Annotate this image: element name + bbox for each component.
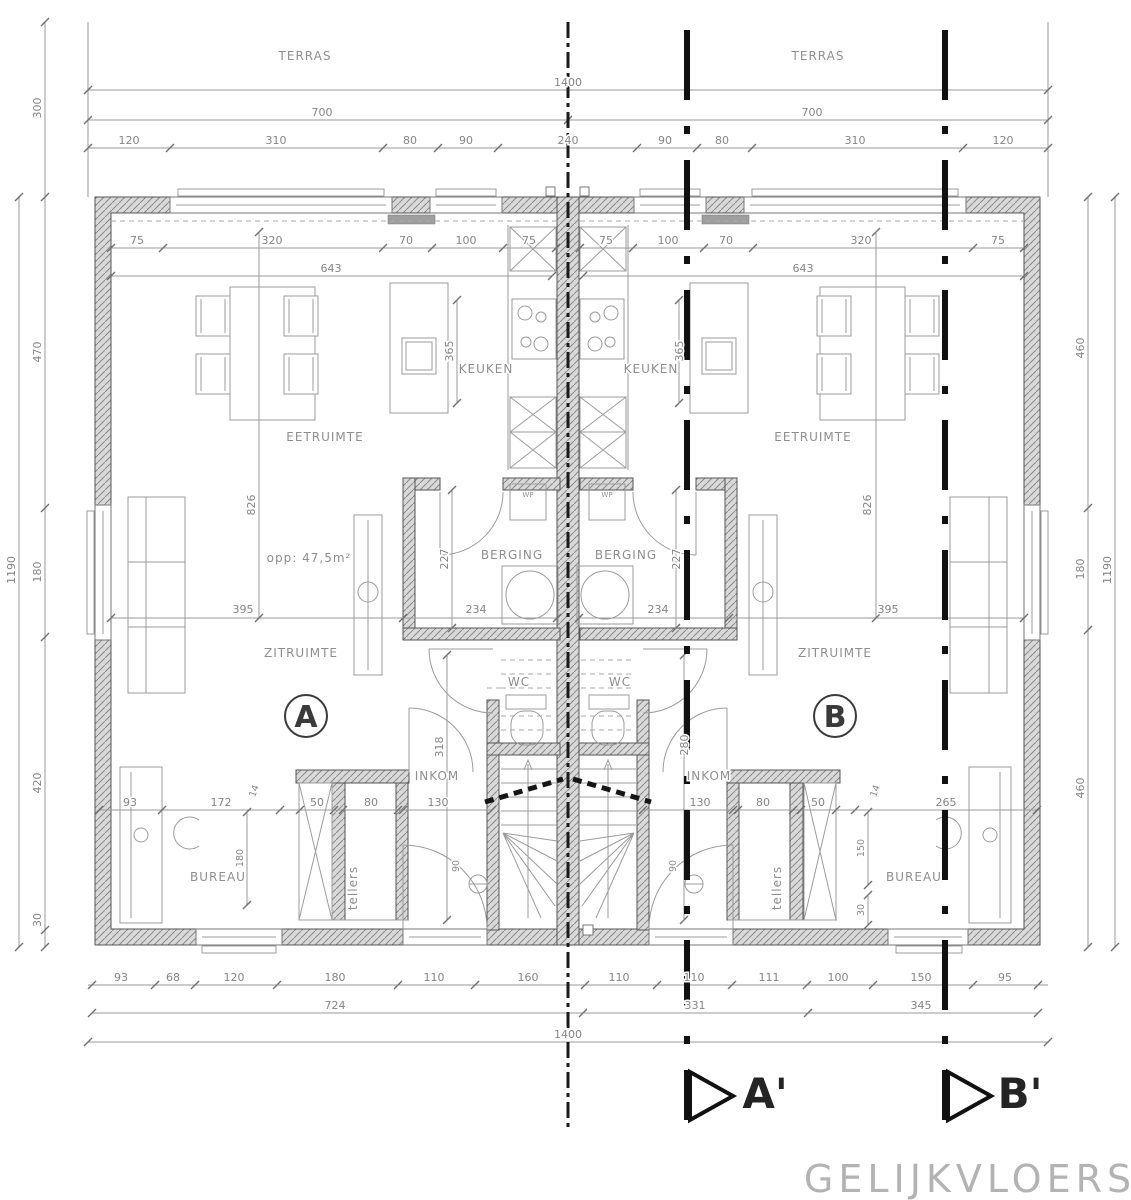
dim-top-chain-7: 310 [845, 134, 866, 147]
dim-top-overall: 1400 [554, 76, 582, 89]
room-label-inkom-right: INKOM [687, 769, 732, 783]
dim-bureau-left-2: 50 [310, 796, 324, 809]
dim-826-right: 826 [861, 495, 874, 516]
door-wc-right [643, 649, 707, 713]
dim-left-chain-0: 470 [31, 342, 44, 363]
room-label-inkom-left: INKOM [415, 769, 460, 783]
dim-bureau-right-1: 50 [811, 796, 825, 809]
dim-bureau-right-150: 150 [856, 839, 867, 857]
window-left-wall [87, 505, 111, 640]
washer-left [502, 566, 558, 624]
dim-left-overall: 1190 [5, 556, 18, 584]
room-label-eetruimte-right: EETRUIMTE [774, 430, 851, 444]
dim-bottom-chain-3: 180 [325, 971, 346, 984]
dim-top-700-left: 700 [312, 106, 333, 119]
dim-right-overall: 1190 [1101, 556, 1114, 584]
dim-int-left-0: 75 [130, 234, 144, 247]
dim-395-left: 395 [233, 603, 254, 616]
dim-top-chain-3: 90 [459, 134, 473, 147]
desk-left [120, 767, 199, 923]
dim-bottom-331: 331 [685, 999, 706, 1012]
dim-int-right-2: 70 [719, 234, 733, 247]
dim-395-right: 395 [878, 603, 899, 616]
section-label-b: B' [998, 1069, 1043, 1118]
section-label-a: A' [742, 1069, 787, 1118]
dim-int-left-4: 75 [522, 234, 536, 247]
dim-bureau-left-3: 80 [364, 796, 378, 809]
dim-bureau-left-14: 14 [247, 784, 261, 799]
dim-bureau-right-2: 265 [936, 796, 957, 809]
floorplan-drawing: 1400 700 700 120 310 80 90 240 90 80 310… [0, 0, 1131, 1200]
dim-227-left: 227 [438, 549, 451, 570]
dim-280-right: 280 [678, 735, 691, 756]
dim-bureau-right-30: 30 [856, 904, 867, 916]
floorplan-canvas: 1400 700 700 120 310 80 90 240 90 80 310… [0, 0, 1131, 1200]
toilet-left [506, 695, 546, 745]
dim-365-left: 365 [443, 341, 456, 362]
dim-bottom-overall: 1400 [554, 1028, 582, 1041]
dim-bottom-chain-6: 110 [609, 971, 630, 984]
dim-90-left: 90 [451, 860, 462, 872]
dim-top-chain-1: 310 [266, 134, 287, 147]
dim-left-chain-1: 180 [31, 562, 44, 583]
dim-top-chain-2: 80 [403, 134, 417, 147]
radiator-right [749, 515, 777, 675]
dim-int-right-643: 643 [793, 262, 814, 275]
room-label-bureau-right: BUREAU [886, 870, 942, 884]
label-area: opp: 47,5m² [267, 551, 352, 565]
dim-right-chain-2: 460 [1074, 778, 1087, 799]
dining-set-left [196, 287, 318, 420]
dim-826-left: 826 [245, 495, 258, 516]
dim-365-right: 365 [673, 341, 686, 362]
room-label-eetruimte-left: EETRUIMTE [286, 430, 363, 444]
window-right-wall [1024, 505, 1048, 640]
dim-bottom-chain-9: 100 [828, 971, 849, 984]
dim-318-left: 318 [433, 737, 446, 758]
dim-bottom-chain-2: 120 [224, 971, 245, 984]
room-label-berging-left: BERGING [481, 548, 543, 562]
room-label-bureau-left: BUREAU [190, 870, 246, 884]
front-door-left [403, 845, 487, 929]
door-zitruimte-right [663, 708, 727, 772]
dim-top-700-right: 700 [802, 106, 823, 119]
room-label-wc-left: WC [508, 675, 530, 689]
unit-b-letter: B [824, 700, 847, 735]
dim-left-chain-2: 420 [31, 773, 44, 794]
section-flag-a [690, 1072, 733, 1120]
section-flag-b [948, 1072, 991, 1120]
dim-right-chain-1: 180 [1074, 559, 1087, 580]
dim-bureau-left-0: 93 [123, 796, 137, 809]
dim-bottom-chain-7: 110 [684, 971, 705, 984]
dim-130-left: 130 [428, 796, 449, 809]
door-berging-left [440, 492, 503, 555]
kitchen-counter-left [508, 225, 556, 470]
front-door-right [649, 845, 733, 929]
room-label-keuken-left: KEUKEN [459, 362, 514, 376]
dim-234-right: 234 [648, 603, 669, 616]
dim-bottom-chain-4: 110 [424, 971, 445, 984]
dim-bottom-chain-5: 160 [518, 971, 539, 984]
dim-130-right: 130 [690, 796, 711, 809]
dim-top-chain-5: 90 [658, 134, 672, 147]
dim-int-right-4: 75 [991, 234, 1005, 247]
room-label-tellers-right: tellers [770, 866, 784, 910]
dim-right-chain-0: 460 [1074, 338, 1087, 359]
dim-bottom-chain-1: 68 [166, 971, 180, 984]
room-label-terras-right: TERRAS [791, 49, 845, 63]
dim-top-chain-6: 80 [715, 134, 729, 147]
dim-int-left-2: 70 [399, 234, 413, 247]
dim-top-chain-4: 240 [558, 134, 579, 147]
washer-right [577, 566, 633, 624]
dim-int-left-643: 643 [321, 262, 342, 275]
dim-int-right-3: 320 [851, 234, 872, 247]
dim-top-chain-8: 120 [993, 134, 1014, 147]
dim-bureau-left-1: 172 [211, 796, 232, 809]
room-label-zitruimte-left: ZITRUIMTE [264, 646, 338, 660]
dim-bureau-right-0: 80 [756, 796, 770, 809]
dim-bottom-chain-10: 150 [911, 971, 932, 984]
dim-234-left: 234 [466, 603, 487, 616]
room-label-terras-left: TERRAS [278, 49, 332, 63]
dim-int-left-1: 320 [262, 234, 283, 247]
wc-stairs-left-walls [487, 700, 560, 930]
dim-int-left-3: 100 [456, 234, 477, 247]
room-label-wc-right: WC [609, 675, 631, 689]
kitchen-counter-right [580, 225, 628, 470]
toilet-right [589, 695, 629, 745]
dim-bureau-right-14: 14 [868, 784, 882, 799]
dim-int-right-1: 100 [658, 234, 679, 247]
label-wp-right: WP [601, 491, 612, 499]
dim-bottom-chain-8: 111 [759, 971, 780, 984]
dim-bottom-chain-0: 93 [114, 971, 128, 984]
dim-bureau-left-180: 180 [235, 849, 246, 867]
dim-227-right: 227 [670, 549, 683, 570]
sofa-left [128, 497, 185, 693]
room-label-tellers-left: tellers [346, 866, 360, 910]
dining-set-right [817, 287, 939, 420]
dim-bottom-724: 724 [325, 999, 346, 1012]
dim-left-300: 300 [31, 98, 44, 119]
sofa-right [950, 497, 1007, 693]
dim-bottom-345: 345 [911, 999, 932, 1012]
dim-90-right: 90 [668, 860, 679, 872]
kitchen-island-right [690, 283, 748, 413]
room-label-berging-right: BERGING [595, 548, 657, 562]
door-wc-left [429, 649, 493, 713]
dim-int-right-0: 75 [599, 234, 613, 247]
room-label-zitruimte-right: ZITRUIMTE [798, 646, 872, 660]
dim-bottom-chain-11: 95 [998, 971, 1012, 984]
label-wp-left: WP [522, 491, 533, 499]
unit-a-letter: A [294, 700, 318, 735]
radiator-left [354, 515, 382, 675]
kitchen-island-left [390, 283, 448, 413]
dim-left-chain-3: 30 [31, 913, 44, 927]
room-label-keuken-right: KEUKEN [624, 362, 679, 376]
dim-top-chain-0: 120 [119, 134, 140, 147]
drawing-title: GELIJKVLOERS [804, 1157, 1131, 1200]
